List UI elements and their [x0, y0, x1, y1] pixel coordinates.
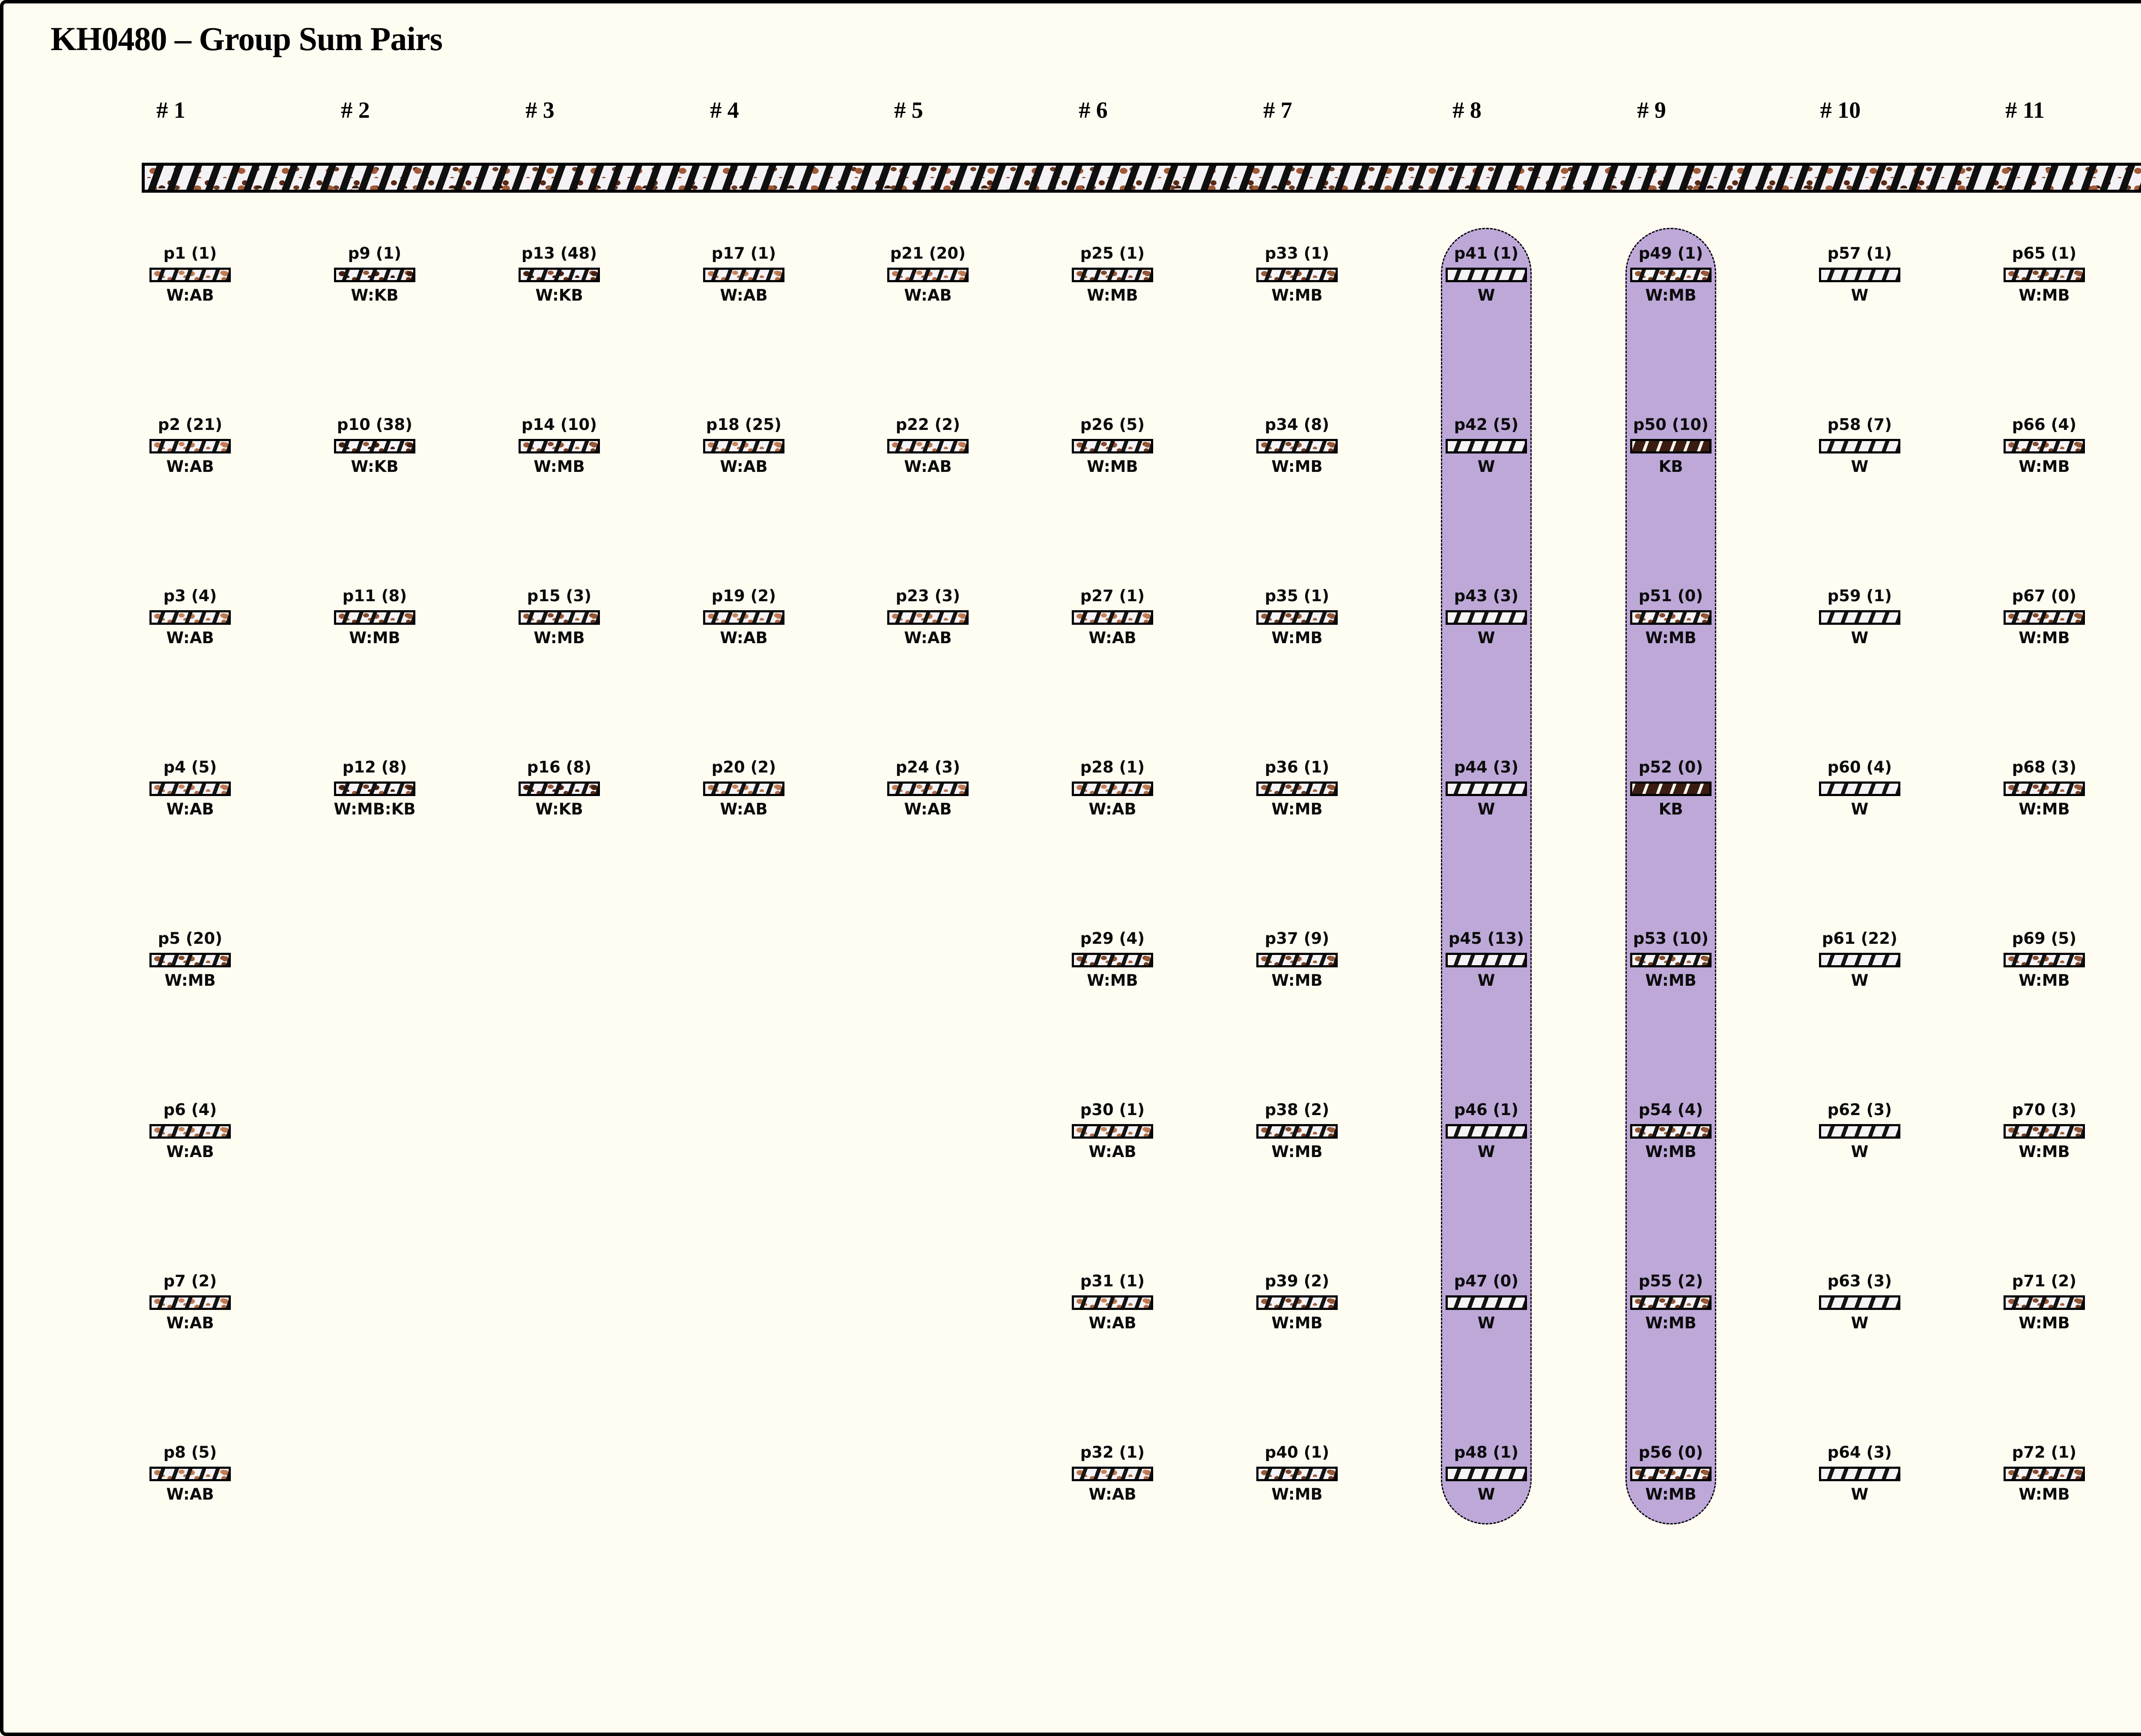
pair-pattern-bar	[2004, 1295, 2085, 1310]
pair-label: p58 (7)	[1787, 415, 1932, 435]
pair-tag: W:MB	[1224, 971, 1370, 990]
pair-tag: W:MB	[1971, 286, 2117, 305]
pair-tag: W:AB	[117, 799, 263, 819]
pair-pattern-bar	[703, 268, 784, 282]
pair-label: p15 (3)	[486, 586, 632, 606]
pair-label: p40 (1)	[1224, 1443, 1370, 1462]
column-header: # 5	[857, 97, 960, 131]
pair-tag: W:MB	[1598, 286, 1744, 305]
pair-tag: W:AB	[117, 286, 263, 305]
pair-label: p50 (10)	[1598, 415, 1744, 435]
pair-label: p14 (10)	[486, 415, 632, 435]
pair-pattern-bar	[1446, 953, 1527, 967]
column-header: # 7	[1226, 97, 1329, 131]
pair-pattern-bar	[703, 781, 784, 796]
pair-label: p65 (1)	[1971, 244, 2117, 263]
pair-pattern-bar	[149, 1467, 231, 1481]
pair-tag: W	[1787, 1313, 1932, 1333]
pair-pattern-bar	[1072, 439, 1153, 453]
pair-pattern-bar	[703, 439, 784, 453]
pair-label: p25 (1)	[1040, 244, 1185, 263]
pair-label: p55 (2)	[1598, 1271, 1744, 1291]
pair-tag: W	[1413, 1485, 1559, 1504]
pair-label: p47 (0)	[1413, 1271, 1559, 1291]
column-header: # 3	[489, 97, 591, 131]
pair-label: p23 (3)	[855, 586, 1001, 606]
pair-label: p45 (13)	[1413, 929, 1559, 949]
page-title: KH0480 – Group Sum Pairs	[51, 20, 442, 58]
pair-pattern-bar	[519, 610, 600, 625]
pair-label: p36 (1)	[1224, 758, 1370, 777]
pair-tag: W	[1413, 286, 1559, 305]
pair-pattern-bar	[334, 781, 415, 796]
pair-label: p43 (3)	[1413, 586, 1559, 606]
pair-tag: W:AB	[117, 1313, 263, 1333]
pair-tag: W	[1413, 457, 1559, 477]
pair-label: p28 (1)	[1040, 758, 1185, 777]
pair-label: p60 (4)	[1787, 758, 1932, 777]
pair-pattern-bar	[1819, 1467, 1900, 1481]
pair-label: p39 (2)	[1224, 1271, 1370, 1291]
pair-tag: W	[1787, 799, 1932, 819]
pair-label: p2 (21)	[117, 415, 263, 435]
pair-pattern-bar	[1630, 1295, 1712, 1310]
pair-label: p41 (1)	[1413, 244, 1559, 263]
pair-pattern-bar	[1072, 781, 1153, 796]
pair-tag: W:MB	[1224, 1313, 1370, 1333]
pair-label: p48 (1)	[1413, 1443, 1559, 1462]
pair-pattern-bar	[2004, 1467, 2085, 1481]
pair-tag: KB	[1598, 457, 1744, 477]
pair-label: p31 (1)	[1040, 1271, 1185, 1291]
pair-label: p32 (1)	[1040, 1443, 1185, 1462]
pair-label: p71 (2)	[1971, 1271, 2117, 1291]
pair-label: p63 (3)	[1787, 1271, 1932, 1291]
pair-pattern-bar	[149, 610, 231, 625]
pair-tag: W:MB	[1598, 971, 1744, 990]
pair-label: p42 (5)	[1413, 415, 1559, 435]
pair-pattern-bar	[1072, 953, 1153, 967]
column-header: # 9	[1600, 97, 1703, 131]
pair-label: p70 (3)	[1971, 1100, 2117, 1120]
pair-pattern-bar	[1446, 781, 1527, 796]
column-header: # 6	[1042, 97, 1145, 131]
summary-pattern-strip	[142, 163, 2141, 193]
pair-pattern-bar	[2004, 610, 2085, 625]
pair-label: p30 (1)	[1040, 1100, 1185, 1120]
pair-pattern-bar	[887, 268, 969, 282]
pair-tag: W:MB	[1040, 457, 1185, 477]
pair-label: p68 (3)	[1971, 758, 2117, 777]
pair-tag: W	[1787, 628, 1932, 648]
pair-tag: W:MB	[1971, 1313, 2117, 1333]
pair-tag: W:KB	[302, 286, 447, 305]
pair-pattern-bar	[1072, 610, 1153, 625]
pair-tag: W:MB	[1971, 799, 2117, 819]
pair-tag: W:AB	[855, 628, 1001, 648]
pair-tag: W:MB	[1598, 1313, 1744, 1333]
pair-pattern-bar	[1256, 268, 1338, 282]
pair-pattern-bar	[1819, 781, 1900, 796]
pair-pattern-bar	[1072, 1295, 1153, 1310]
column-header: # 2	[304, 97, 407, 131]
column-header: # 8	[1416, 97, 1518, 131]
pair-pattern-bar	[149, 439, 231, 453]
pair-tag: W	[1413, 628, 1559, 648]
pair-tag: W:AB	[117, 1142, 263, 1162]
pair-tag: W	[1413, 799, 1559, 819]
pair-label: p52 (0)	[1598, 758, 1744, 777]
pair-label: p54 (4)	[1598, 1100, 1744, 1120]
pair-tag: W	[1787, 971, 1932, 990]
pair-tag: W:AB	[117, 457, 263, 477]
pair-tag: W:MB	[1971, 1142, 2117, 1162]
pair-tag: W:AB	[855, 799, 1001, 819]
pair-pattern-bar	[1256, 439, 1338, 453]
pair-pattern-bar	[1630, 268, 1712, 282]
pair-tag: W	[1413, 971, 1559, 990]
pair-tag: W:AB	[855, 286, 1001, 305]
pair-pattern-bar	[887, 781, 969, 796]
pair-pattern-bar	[1072, 1467, 1153, 1481]
column-header: # 1	[119, 97, 222, 131]
column-header: # 10	[1789, 97, 1892, 131]
column-header: # 11	[1974, 97, 2076, 131]
pair-label: p26 (5)	[1040, 415, 1185, 435]
pair-tag: W:AB	[671, 457, 817, 477]
pair-tag: W:MB	[1971, 971, 2117, 990]
pair-tag: W:AB	[1040, 1142, 1185, 1162]
pair-tag: W:MB	[1224, 1485, 1370, 1504]
pair-tag: W:MB	[1224, 457, 1370, 477]
pair-tag: W:AB	[1040, 628, 1185, 648]
pair-label: p33 (1)	[1224, 244, 1370, 263]
pair-pattern-bar	[334, 439, 415, 453]
pair-pattern-bar	[1630, 439, 1712, 453]
pair-pattern-bar	[1819, 268, 1900, 282]
pair-tag: W:AB	[671, 799, 817, 819]
pair-label: p49 (1)	[1598, 244, 1744, 263]
pair-label: p64 (3)	[1787, 1443, 1932, 1462]
pair-label: p18 (25)	[671, 415, 817, 435]
pair-label: p62 (3)	[1787, 1100, 1932, 1120]
pair-pattern-bar	[519, 439, 600, 453]
pair-label: p10 (38)	[302, 415, 447, 435]
pair-label: p12 (8)	[302, 758, 447, 777]
pair-label: p37 (9)	[1224, 929, 1370, 949]
pair-tag: W:MB	[117, 971, 263, 990]
pair-pattern-bar	[2004, 439, 2085, 453]
pair-pattern-bar	[2004, 781, 2085, 796]
pair-label: p8 (5)	[117, 1443, 263, 1462]
pair-label: p35 (1)	[1224, 586, 1370, 606]
pair-pattern-bar	[1446, 610, 1527, 625]
pair-label: p16 (8)	[486, 758, 632, 777]
pair-pattern-bar	[1256, 1124, 1338, 1139]
pair-tag: W	[1787, 1142, 1932, 1162]
pair-label: p4 (5)	[117, 758, 263, 777]
pair-tag: W:MB	[1598, 1485, 1744, 1504]
pair-label: p59 (1)	[1787, 586, 1932, 606]
pair-pattern-bar	[1446, 268, 1527, 282]
pair-label: p21 (20)	[855, 244, 1001, 263]
pair-label: p44 (3)	[1413, 758, 1559, 777]
pair-tag: W	[1787, 1485, 1932, 1504]
pair-pattern-bar	[2004, 1124, 2085, 1139]
pair-label: p53 (10)	[1598, 929, 1744, 949]
pair-pattern-bar	[2004, 953, 2085, 967]
pair-pattern-bar	[1446, 1124, 1527, 1139]
pair-pattern-bar	[1256, 953, 1338, 967]
pair-pattern-bar	[149, 1295, 231, 1310]
pair-pattern-bar	[1256, 781, 1338, 796]
pair-pattern-bar	[887, 439, 969, 453]
pair-tag: W:AB	[117, 628, 263, 648]
pair-label: p3 (4)	[117, 586, 263, 606]
pair-pattern-bar	[1630, 610, 1712, 625]
pair-pattern-bar	[1256, 1467, 1338, 1481]
pair-pattern-bar	[1446, 1295, 1527, 1310]
pair-pattern-bar	[334, 268, 415, 282]
pair-pattern-bar	[1072, 1124, 1153, 1139]
pair-label: p29 (4)	[1040, 929, 1185, 949]
pair-label: p19 (2)	[671, 586, 817, 606]
pair-label: p56 (0)	[1598, 1443, 1744, 1462]
pair-pattern-bar	[1630, 1124, 1712, 1139]
pair-tag: W:KB	[486, 286, 632, 305]
pair-pattern-bar	[887, 610, 969, 625]
pair-pattern-bar	[149, 781, 231, 796]
pair-label: p22 (2)	[855, 415, 1001, 435]
column-header: # 4	[673, 97, 776, 131]
pair-tag: W:AB	[1040, 799, 1185, 819]
pair-label: p9 (1)	[302, 244, 447, 263]
pair-tag: W:MB	[302, 628, 447, 648]
pair-tag: W:AB	[855, 457, 1001, 477]
pair-tag: W:MB:KB	[302, 799, 447, 819]
pair-pattern-bar	[519, 268, 600, 282]
pair-label: p6 (4)	[117, 1100, 263, 1120]
pair-label: p34 (8)	[1224, 415, 1370, 435]
pair-tag: W:MB	[1598, 1142, 1744, 1162]
pair-label: p11 (8)	[302, 586, 447, 606]
pair-label: p7 (2)	[117, 1271, 263, 1291]
pair-tag: W:AB	[671, 286, 817, 305]
pair-tag: W:MB	[1224, 628, 1370, 648]
pair-pattern-bar	[1072, 268, 1153, 282]
pair-tag: W:MB	[1040, 286, 1185, 305]
pair-tag: W:AB	[117, 1485, 263, 1504]
pair-pattern-bar	[1630, 953, 1712, 967]
pair-label: p13 (48)	[486, 244, 632, 263]
pair-tag: KB	[1598, 799, 1744, 819]
pair-pattern-bar	[1630, 781, 1712, 796]
pair-pattern-bar	[1819, 439, 1900, 453]
pair-pattern-bar	[149, 268, 231, 282]
pair-label: p38 (2)	[1224, 1100, 1370, 1120]
pair-pattern-bar	[1819, 953, 1900, 967]
pair-tag: W:MB	[1971, 628, 2117, 648]
pair-pattern-bar	[1256, 1295, 1338, 1310]
pair-pattern-bar	[1630, 1467, 1712, 1481]
pair-label: p24 (3)	[855, 758, 1001, 777]
pair-label: p66 (4)	[1971, 415, 2117, 435]
pair-label: p27 (1)	[1040, 586, 1185, 606]
pair-label: p57 (1)	[1787, 244, 1932, 263]
diagram-canvas: KH0480 – Group Sum Pairs # 1p1 (1)W:ABp2…	[0, 0, 2141, 1736]
pair-pattern-bar	[334, 610, 415, 625]
pair-label: p20 (2)	[671, 758, 817, 777]
pair-label: p5 (20)	[117, 929, 263, 949]
pair-label: p1 (1)	[117, 244, 263, 263]
pair-label: p51 (0)	[1598, 586, 1744, 606]
pair-tag: W:MB	[1224, 1142, 1370, 1162]
pair-pattern-bar	[703, 610, 784, 625]
pair-tag: W	[1787, 457, 1932, 477]
pair-tag: W:MB	[1971, 1485, 2117, 1504]
pair-pattern-bar	[1446, 439, 1527, 453]
pair-pattern-bar	[1819, 610, 1900, 625]
pair-pattern-bar	[149, 1124, 231, 1139]
pair-tag: W	[1413, 1142, 1559, 1162]
pair-tag: W:KB	[302, 457, 447, 477]
pair-tag: W:AB	[1040, 1313, 1185, 1333]
pair-tag: W:MB	[1598, 628, 1744, 648]
pair-pattern-bar	[519, 781, 600, 796]
pair-label: p72 (1)	[1971, 1443, 2117, 1462]
pair-label: p61 (22)	[1787, 929, 1932, 949]
pair-tag: W:KB	[486, 799, 632, 819]
pair-pattern-bar	[1256, 610, 1338, 625]
pair-tag: W	[1787, 286, 1932, 305]
pair-tag: W:AB	[671, 628, 817, 648]
pair-label: p69 (5)	[1971, 929, 2117, 949]
pair-pattern-bar	[1819, 1124, 1900, 1139]
pair-tag: W	[1413, 1313, 1559, 1333]
pair-tag: W:MB	[1040, 971, 1185, 990]
pair-pattern-bar	[2004, 268, 2085, 282]
pair-tag: W:MB	[1224, 286, 1370, 305]
pair-label: p67 (0)	[1971, 586, 2117, 606]
pair-tag: W:MB	[486, 628, 632, 648]
pair-tag: W:AB	[1040, 1485, 1185, 1504]
pair-pattern-bar	[149, 953, 231, 967]
pair-tag: W:MB	[1224, 799, 1370, 819]
pair-label: p17 (1)	[671, 244, 817, 263]
pair-pattern-bar	[1446, 1467, 1527, 1481]
pair-label: p46 (1)	[1413, 1100, 1559, 1120]
pair-tag: W:MB	[1971, 457, 2117, 477]
pair-tag: W:MB	[486, 457, 632, 477]
pair-pattern-bar	[1819, 1295, 1900, 1310]
